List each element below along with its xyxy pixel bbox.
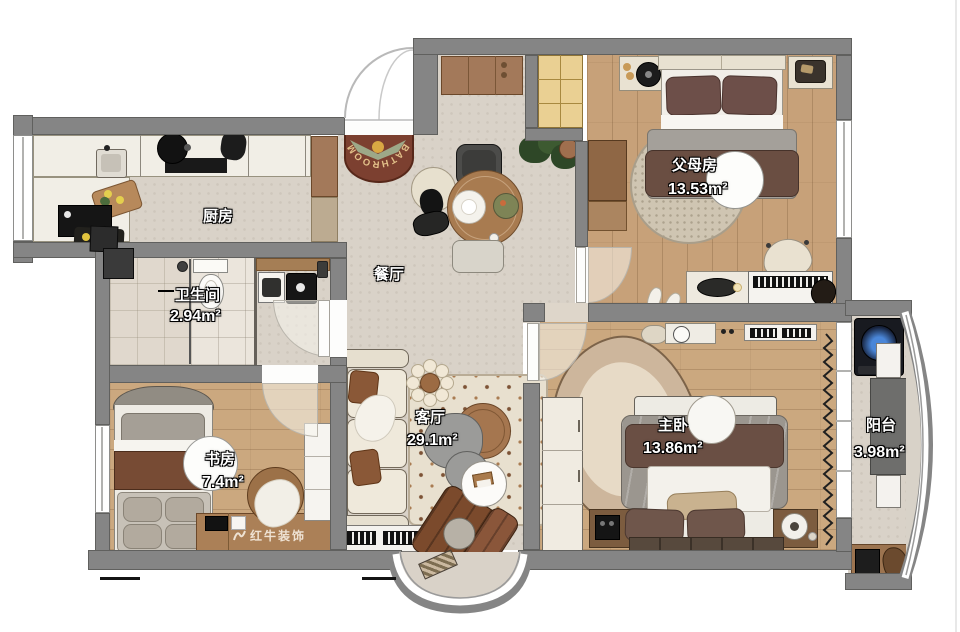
parents-headboard — [658, 55, 786, 70]
room-label-study: 书房 — [205, 452, 235, 469]
laptop — [205, 516, 228, 531]
window-pane-line — [101, 427, 103, 511]
closet-seam — [538, 103, 583, 104]
closet-seam — [538, 79, 583, 80]
croissant — [626, 72, 634, 80]
decor-dot — [501, 62, 507, 68]
plate-inner — [461, 199, 477, 215]
shower-head — [177, 261, 188, 272]
page-edge-line — [955, 0, 957, 632]
pillow — [665, 75, 721, 116]
salad-bowl — [493, 193, 519, 219]
kitchen-lower-cabinet — [311, 197, 338, 242]
bulb — [733, 283, 742, 292]
desk-tray — [697, 278, 738, 297]
room-label-living: 客厅 — [415, 410, 445, 427]
counter-seam — [248, 135, 249, 177]
floor-plan: 红牛装饰 — [0, 0, 960, 632]
wardrobe-handle — [578, 470, 580, 482]
wardrobe-seam — [542, 504, 583, 505]
slider-seam — [836, 470, 852, 472]
wall — [523, 303, 545, 322]
fridge-cabinet — [311, 136, 338, 197]
hongniu-logo-icon — [232, 528, 247, 543]
wall — [525, 128, 583, 141]
wardrobe-seam — [542, 450, 583, 451]
quilt-tuft — [123, 524, 162, 549]
sheet-fold — [661, 115, 783, 130]
room-label-dining: 餐厅 — [374, 267, 404, 284]
speaker-slats — [347, 531, 376, 545]
parents-wardrobe-upper — [588, 140, 627, 201]
wall — [13, 117, 345, 135]
desk-seam — [228, 513, 229, 554]
shoe-cabinet — [441, 56, 523, 95]
speaker-slats — [782, 328, 811, 338]
cabinet-seam — [495, 56, 496, 95]
cabinet-seam — [468, 56, 469, 95]
vanity-mirror — [673, 326, 690, 343]
speaker-knob — [609, 521, 614, 526]
room-area-living: 29.1m² — [407, 432, 458, 450]
watermark: 红牛装饰 — [232, 527, 306, 544]
decor-dot — [501, 72, 507, 78]
dimension-tick — [362, 577, 396, 580]
wall — [588, 303, 852, 322]
fixture — [317, 261, 328, 278]
room-label-balcony: 阳台 — [866, 418, 896, 435]
dimension-tick — [100, 577, 140, 580]
room-label-kitchen: 厨房 — [203, 209, 233, 226]
slider-seam — [836, 420, 852, 422]
wall — [330, 357, 347, 550]
toilet-tank — [193, 259, 228, 273]
room-label-parents: 父母房 — [672, 158, 717, 175]
speaker-slats — [750, 328, 777, 338]
sofa-pillow — [349, 448, 383, 487]
quilt-tuft — [123, 497, 162, 522]
counter-seam — [140, 135, 141, 177]
closet-seam — [560, 55, 561, 128]
wall — [413, 38, 852, 55]
wall — [836, 238, 852, 304]
cooktop-knob — [64, 211, 71, 218]
partition — [254, 258, 257, 365]
room-area-master: 13.86m² — [643, 440, 703, 458]
entry-door-panel — [345, 48, 413, 122]
lemon — [116, 196, 124, 204]
master-door-leaf — [527, 323, 539, 381]
headboard-seam — [721, 55, 722, 70]
balcony-wall — [845, 300, 912, 316]
speaker — [595, 515, 620, 540]
dining-chair-bottom — [452, 240, 504, 273]
salad-garnish — [500, 200, 506, 206]
bookshelf — [304, 423, 332, 521]
round-pillow — [687, 395, 736, 444]
wardrobe-handle — [578, 420, 580, 432]
parents-door-leaf — [576, 247, 586, 303]
room-area-study: 7.4m² — [202, 474, 244, 492]
master-doorway — [545, 303, 588, 322]
wall — [518, 550, 852, 570]
wall — [13, 242, 347, 258]
room-area-bathroom: 2.94m² — [170, 308, 221, 326]
shelf-line — [304, 456, 332, 457]
slider-seam — [836, 370, 852, 372]
study-doorway — [262, 365, 318, 383]
sink-basin — [101, 154, 121, 172]
window-pane-line — [22, 137, 24, 239]
lemon — [82, 233, 90, 241]
drying-rack-end — [876, 475, 901, 508]
fan-center — [790, 522, 799, 531]
bathroom-doorway — [330, 300, 347, 357]
room-label-bathroom: 卫生间 — [175, 288, 220, 305]
sink-drain — [296, 283, 305, 292]
storage-box — [855, 549, 880, 576]
pan-handle — [184, 144, 191, 151]
knob — [729, 329, 734, 334]
entry-door-arc-inner — [379, 50, 413, 120]
faucet — [104, 145, 110, 151]
drying-rack-end — [876, 343, 901, 378]
wall — [575, 141, 588, 247]
shelf-line — [304, 489, 332, 490]
room-label-master: 主卧 — [658, 418, 688, 435]
parents-wardrobe-lower — [588, 201, 627, 231]
croissant — [623, 63, 631, 71]
room-area-parents: 13.53m² — [668, 181, 728, 199]
entry-door-arc — [345, 48, 413, 118]
wall — [13, 115, 33, 137]
wall — [836, 518, 852, 552]
master-wardrobe — [542, 397, 583, 558]
chair-leg — [804, 240, 809, 245]
wall — [836, 55, 852, 120]
counter-seam — [305, 135, 306, 177]
bathroom-doormat — [344, 133, 414, 183]
appliance-drum — [262, 278, 281, 297]
wall — [330, 258, 347, 302]
vanity-stool — [641, 325, 668, 344]
bathroom-door-leaf — [318, 300, 330, 357]
balcony-wall — [845, 573, 912, 590]
utility-shaft — [103, 248, 134, 279]
watermark-brand: 红牛装饰 — [250, 527, 306, 544]
cup — [808, 532, 817, 541]
wall — [523, 383, 540, 550]
wall — [525, 55, 538, 128]
label-leader-line — [158, 290, 174, 292]
entry-doorway — [345, 117, 413, 135]
wall — [88, 550, 402, 570]
window-pane-line — [843, 122, 845, 236]
record-center — [645, 71, 652, 78]
pillow — [721, 75, 777, 116]
speaker-knob — [600, 521, 605, 526]
knob — [721, 329, 726, 334]
chair-leg — [766, 243, 771, 248]
room-area-balcony: 3.98m² — [854, 444, 905, 462]
